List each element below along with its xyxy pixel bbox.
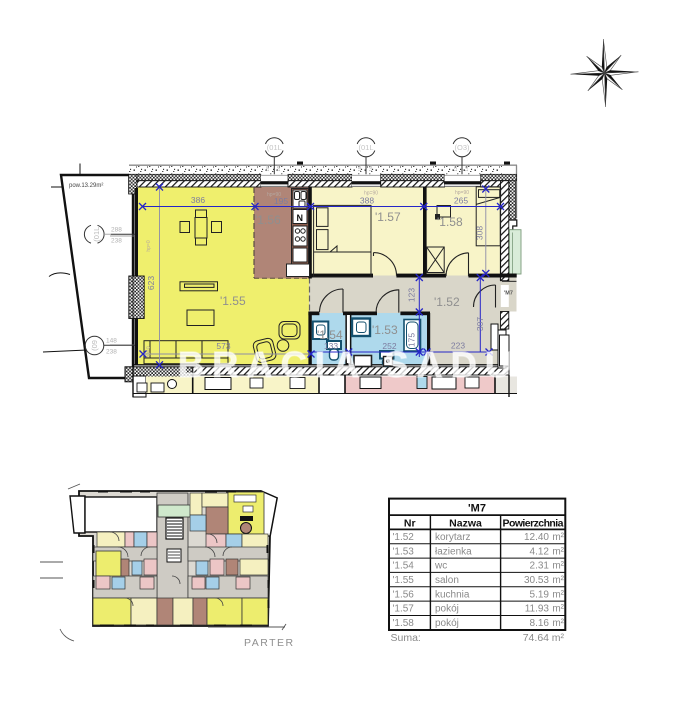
svg-text:148: 148 <box>106 338 117 345</box>
svg-text:m²: m² <box>552 604 564 615</box>
svg-text:307: 307 <box>475 317 485 331</box>
svg-text:'1.55: '1.55 <box>220 294 246 308</box>
svg-text:388: 388 <box>360 196 374 206</box>
svg-text:238: 238 <box>111 238 122 245</box>
svg-text:wc: wc <box>434 561 447 572</box>
svg-text:hp=90: hp=90 <box>364 191 378 197</box>
svg-text:hp=0: hp=0 <box>146 240 152 251</box>
svg-text:m²: m² <box>552 532 564 543</box>
svg-text:'M7: 'M7 <box>468 503 486 515</box>
svg-text:'1.54: '1.54 <box>317 328 343 342</box>
svg-text:'1.52: '1.52 <box>434 295 460 309</box>
svg-text:(09: (09 <box>90 340 99 351</box>
svg-text:'1.57: '1.57 <box>375 210 401 224</box>
svg-text:4.12: 4.12 <box>530 546 550 557</box>
svg-text:12.40: 12.40 <box>524 532 549 543</box>
svg-text:5.19: 5.19 <box>530 589 550 600</box>
svg-text:m²: m² <box>552 561 564 572</box>
svg-text:'1.58: '1.58 <box>437 215 463 229</box>
svg-text:m²: m² <box>552 618 564 629</box>
svg-text:'1.56: '1.56 <box>393 589 415 600</box>
svg-text:hp=90: hp=90 <box>267 192 281 198</box>
svg-text:N: N <box>297 213 304 223</box>
svg-text:(01L: (01L <box>267 143 282 152</box>
svg-text:'1.52: '1.52 <box>393 532 415 543</box>
svg-text:hp=0: hp=0 <box>146 346 152 357</box>
svg-text:265: 265 <box>454 196 468 206</box>
svg-text:386: 386 <box>191 195 205 205</box>
svg-text:100: 100 <box>357 164 362 172</box>
svg-text:308: 308 <box>475 226 485 240</box>
svg-text:Powierzchnia: Powierzchnia <box>503 518 564 530</box>
svg-text:148: 148 <box>368 164 373 172</box>
svg-text:8.16: 8.16 <box>530 618 550 629</box>
svg-text:pokój: pokój <box>435 618 459 629</box>
svg-text:'1.57: '1.57 <box>393 604 415 615</box>
svg-text:123: 123 <box>407 288 417 302</box>
svg-text:korytarz: korytarz <box>435 532 471 543</box>
svg-text:hp=90: hp=90 <box>455 190 469 196</box>
svg-text:100: 100 <box>265 164 270 172</box>
svg-text:'1.58: '1.58 <box>393 618 415 629</box>
svg-text:Nazwa: Nazwa <box>449 518 482 530</box>
svg-text:'1.53: '1.53 <box>372 323 398 337</box>
svg-text:m²: m² <box>552 546 564 557</box>
svg-text:Suma:: Suma: <box>391 632 421 644</box>
svg-text:288: 288 <box>111 227 122 234</box>
svg-text:salon: salon <box>435 575 459 586</box>
svg-text:m²: m² <box>552 632 565 644</box>
svg-text:(01L: (01L <box>358 143 373 152</box>
svg-text:74.64: 74.64 <box>523 632 549 644</box>
svg-text:m²: m² <box>552 575 564 586</box>
svg-text:(O3): (O3) <box>455 143 471 152</box>
svg-text:łazienka: łazienka <box>435 546 472 557</box>
svg-text:pokój: pokój <box>435 604 459 615</box>
svg-text:148: 148 <box>464 164 469 172</box>
svg-text:PARTER: PARTER <box>244 637 295 649</box>
svg-text:'M7: 'M7 <box>504 291 513 297</box>
svg-text:(01L: (01L <box>92 227 101 242</box>
svg-text:623: 623 <box>146 276 156 290</box>
svg-text:'1.54: '1.54 <box>393 561 415 572</box>
svg-text:pow.13.29m²: pow.13.29m² <box>69 183 103 189</box>
svg-text:126: 126 <box>453 164 458 172</box>
svg-text:'1.56: '1.56 <box>255 213 281 227</box>
svg-text:'1.53: '1.53 <box>393 546 415 557</box>
svg-text:2.31: 2.31 <box>530 561 550 572</box>
svg-text:30.53: 30.53 <box>524 575 549 586</box>
svg-text:'1.55: '1.55 <box>393 575 415 586</box>
svg-text:148: 148 <box>276 164 281 172</box>
svg-text:kuchnia: kuchnia <box>435 589 470 600</box>
svg-text:m²: m² <box>552 589 564 600</box>
svg-text:Nr: Nr <box>404 518 416 530</box>
svg-text:238: 238 <box>106 349 117 356</box>
svg-text:11.93: 11.93 <box>525 604 550 615</box>
